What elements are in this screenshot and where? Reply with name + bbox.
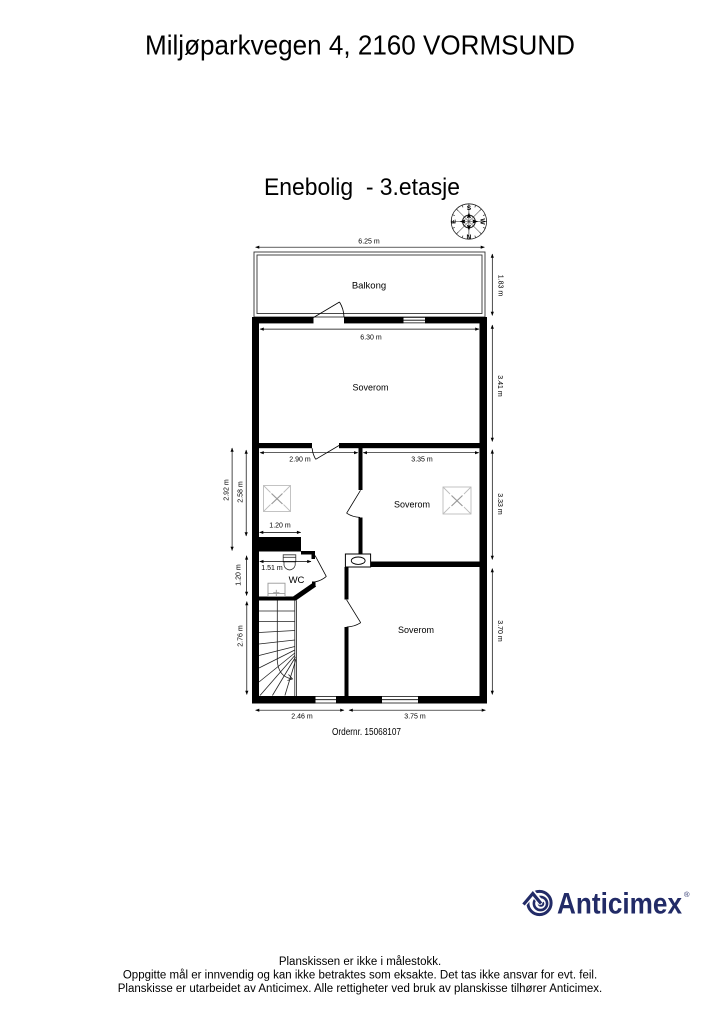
svg-text:Balkong: Balkong	[352, 281, 386, 292]
svg-text:E: E	[450, 219, 457, 224]
svg-text:1.20 m: 1.20 m	[269, 523, 291, 530]
svg-text:Soverom: Soverom	[398, 625, 434, 635]
svg-text:2.58 m: 2.58 m	[238, 481, 245, 503]
svg-text:®: ®	[684, 890, 690, 899]
svg-text:Anticimex: Anticimex	[557, 888, 682, 921]
svg-text:Soverom: Soverom	[352, 383, 388, 393]
svg-text:S: S	[467, 205, 472, 212]
svg-text:1.20 m: 1.20 m	[236, 564, 243, 586]
svg-text:1.51 m: 1.51 m	[261, 565, 283, 572]
svg-text:3.75 m: 3.75 m	[404, 714, 426, 721]
svg-text:3.35 m: 3.35 m	[411, 456, 433, 463]
svg-text:WC: WC	[289, 575, 305, 586]
svg-text:1.83 m: 1.83 m	[497, 275, 504, 297]
svg-text:N: N	[467, 234, 472, 241]
svg-text:2.90 m: 2.90 m	[289, 456, 311, 463]
svg-text:2.76 m: 2.76 m	[237, 625, 244, 647]
svg-text:Planskisse er utarbeidet av An: Planskisse er utarbeidet av Anticimex. A…	[118, 983, 603, 995]
svg-text:W: W	[478, 218, 485, 225]
svg-text:6.30 m: 6.30 m	[360, 334, 382, 341]
svg-text:6.25 m: 6.25 m	[358, 238, 380, 245]
svg-text:Ordernr. 15068107: Ordernr. 15068107	[332, 727, 401, 738]
svg-text:Enebolig - 3.etasje: Enebolig - 3.etasje	[264, 174, 460, 201]
svg-text:3.70 m: 3.70 m	[496, 620, 503, 642]
svg-text:Planskissen er ikke i målestok: Planskissen er ikke i målestokk.	[279, 956, 441, 968]
svg-text:3.33 m: 3.33 m	[496, 493, 503, 515]
svg-text:2.92 m: 2.92 m	[224, 479, 231, 501]
svg-text:2.46 m: 2.46 m	[291, 714, 313, 721]
svg-text:3.41 m: 3.41 m	[496, 375, 503, 397]
svg-text:Oppgitte mål er innvendig og k: Oppgitte mål er innvendig og kan ikke be…	[123, 970, 597, 982]
svg-text:Miljøparkvegen 4, 2160 VORMSUN: Miljøparkvegen 4, 2160 VORMSUND	[145, 30, 575, 61]
svg-text:Soverom: Soverom	[394, 499, 430, 509]
